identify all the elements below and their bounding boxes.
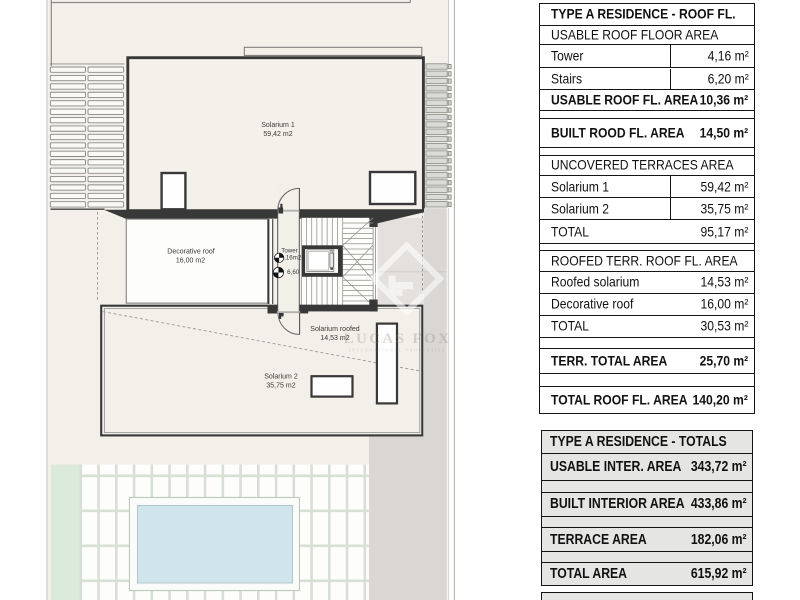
svg-text:6,60: 6,60 bbox=[287, 269, 300, 276]
svg-text:LUCAS FOX: LUCAS FOX bbox=[344, 331, 452, 347]
svg-text:35,75 m2: 35,75 m2 bbox=[266, 383, 295, 390]
svg-text:Solarium 1: Solarium 1 bbox=[261, 122, 295, 129]
svg-text:16,00 m2: 16,00 m2 bbox=[176, 258, 205, 265]
svg-text:Decorative roof: Decorative roof bbox=[167, 249, 215, 256]
svg-text:INTERNATIONAL PROPERTIES: INTERNATIONAL PROPERTIES bbox=[349, 348, 446, 353]
svg-text:59,42 m2: 59,42 m2 bbox=[263, 131, 292, 138]
svg-text:Solarium 2: Solarium 2 bbox=[264, 374, 298, 381]
svg-text:Tower: Tower bbox=[281, 247, 298, 254]
